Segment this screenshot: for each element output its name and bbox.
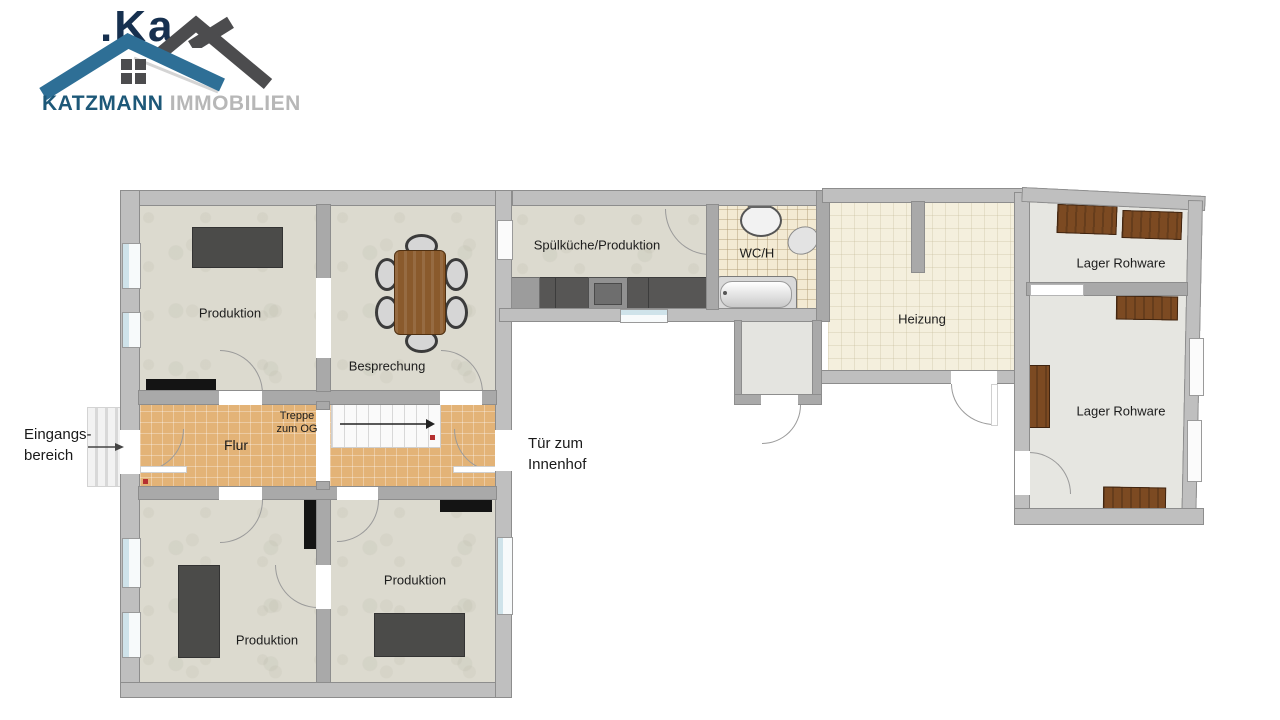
marker-dot	[430, 435, 435, 440]
chair	[444, 296, 468, 329]
wall	[822, 188, 1028, 203]
worktable	[178, 565, 220, 658]
wall	[734, 320, 742, 404]
room-label-lager-2: Lager Rohware	[1077, 404, 1166, 419]
courtyard-door-annotation-line1: Tür zum	[528, 433, 586, 454]
wall	[812, 320, 822, 404]
counter-divider	[648, 277, 649, 310]
brand-logo: .Ka KATZMANN IMMOBILIEN	[0, 0, 300, 130]
room-label-lager-1: Lager Rohware	[1077, 256, 1166, 271]
wall	[316, 481, 330, 490]
storage-shelf	[1122, 210, 1183, 240]
wall	[512, 190, 830, 206]
counter-divider	[555, 277, 556, 310]
door-opening	[761, 395, 798, 405]
door-opening	[337, 487, 378, 500]
stairs-annotation: Treppe zum OG	[268, 410, 326, 436]
entrance-annotation-line2: bereich	[24, 445, 92, 466]
sink-basin	[594, 283, 622, 305]
entrance-annotation: Eingangs- bereich	[24, 424, 92, 466]
washbasin	[740, 204, 782, 237]
door-leaf	[453, 466, 498, 473]
door-opening	[1015, 451, 1030, 495]
storage-shelf	[1027, 365, 1050, 428]
window	[122, 312, 141, 348]
wall-niche	[1030, 284, 1084, 296]
stairs-annotation-line1: Treppe	[268, 410, 326, 423]
room-label-wc: WC/H	[740, 246, 775, 261]
entrance-direction-arrow-icon	[88, 440, 126, 454]
room-label-flur: Flur	[224, 437, 248, 453]
door-leaf	[991, 384, 998, 426]
room-label-spuelkueche: Spülküche/Produktion	[534, 238, 660, 253]
courtyard-door-annotation: Tür zum Innenhof	[528, 433, 586, 475]
room-label-produktion-s: Produktion	[384, 573, 446, 588]
window	[1189, 338, 1204, 396]
window	[122, 243, 141, 289]
door-leaf	[140, 466, 187, 473]
brand-name: KATZMANN IMMOBILIEN	[42, 92, 301, 116]
storage-shelf	[1057, 204, 1118, 235]
door-arc	[951, 384, 995, 425]
wall	[1014, 508, 1204, 525]
door-opening	[316, 278, 331, 358]
door-opening	[219, 487, 262, 500]
door-opening	[951, 371, 997, 384]
brand-name-main: KATZMANN	[42, 92, 163, 115]
kitchen-unit	[510, 277, 540, 312]
window	[122, 538, 141, 588]
worktable	[374, 613, 465, 657]
window	[122, 612, 141, 658]
wall	[120, 682, 512, 698]
wall	[816, 190, 830, 322]
door-opening	[219, 391, 262, 405]
room-label-besprechung: Besprechung	[349, 359, 426, 374]
bathtub-tap	[723, 291, 727, 295]
marker-dot	[143, 479, 148, 484]
entrance-annotation-line1: Eingangs-	[24, 424, 92, 445]
door-opening	[316, 565, 331, 609]
door-opening	[440, 391, 482, 405]
room-label-heizung: Heizung	[898, 312, 946, 327]
vestibule-floor	[742, 320, 814, 396]
floorplan-page: .Ka KATZMANN IMMOBILIEN	[0, 0, 1280, 720]
window	[1187, 420, 1202, 482]
stairs-direction-arrow-icon	[338, 416, 438, 432]
courtyard-door-annotation-line2: Innenhof	[528, 454, 586, 475]
brand-name-suffix: IMMOBILIEN	[170, 92, 301, 115]
logo-roofs-icon	[28, 14, 284, 100]
room-label-produktion-sw: Produktion	[236, 633, 298, 648]
worktable	[192, 227, 283, 268]
meeting-table	[394, 250, 446, 335]
bathtub-basin	[720, 281, 792, 308]
wall	[706, 204, 719, 310]
chair	[444, 258, 468, 291]
courtyard-door-opening	[495, 430, 512, 471]
storage-shelf	[1116, 295, 1178, 320]
window	[497, 537, 513, 615]
wall	[911, 201, 925, 273]
wall	[316, 401, 330, 410]
door-arc	[762, 405, 801, 444]
window	[620, 309, 668, 323]
room-label-produktion-nw: Produktion	[199, 306, 261, 321]
window	[497, 220, 513, 260]
stairs-annotation-line2: zum OG	[268, 423, 326, 436]
